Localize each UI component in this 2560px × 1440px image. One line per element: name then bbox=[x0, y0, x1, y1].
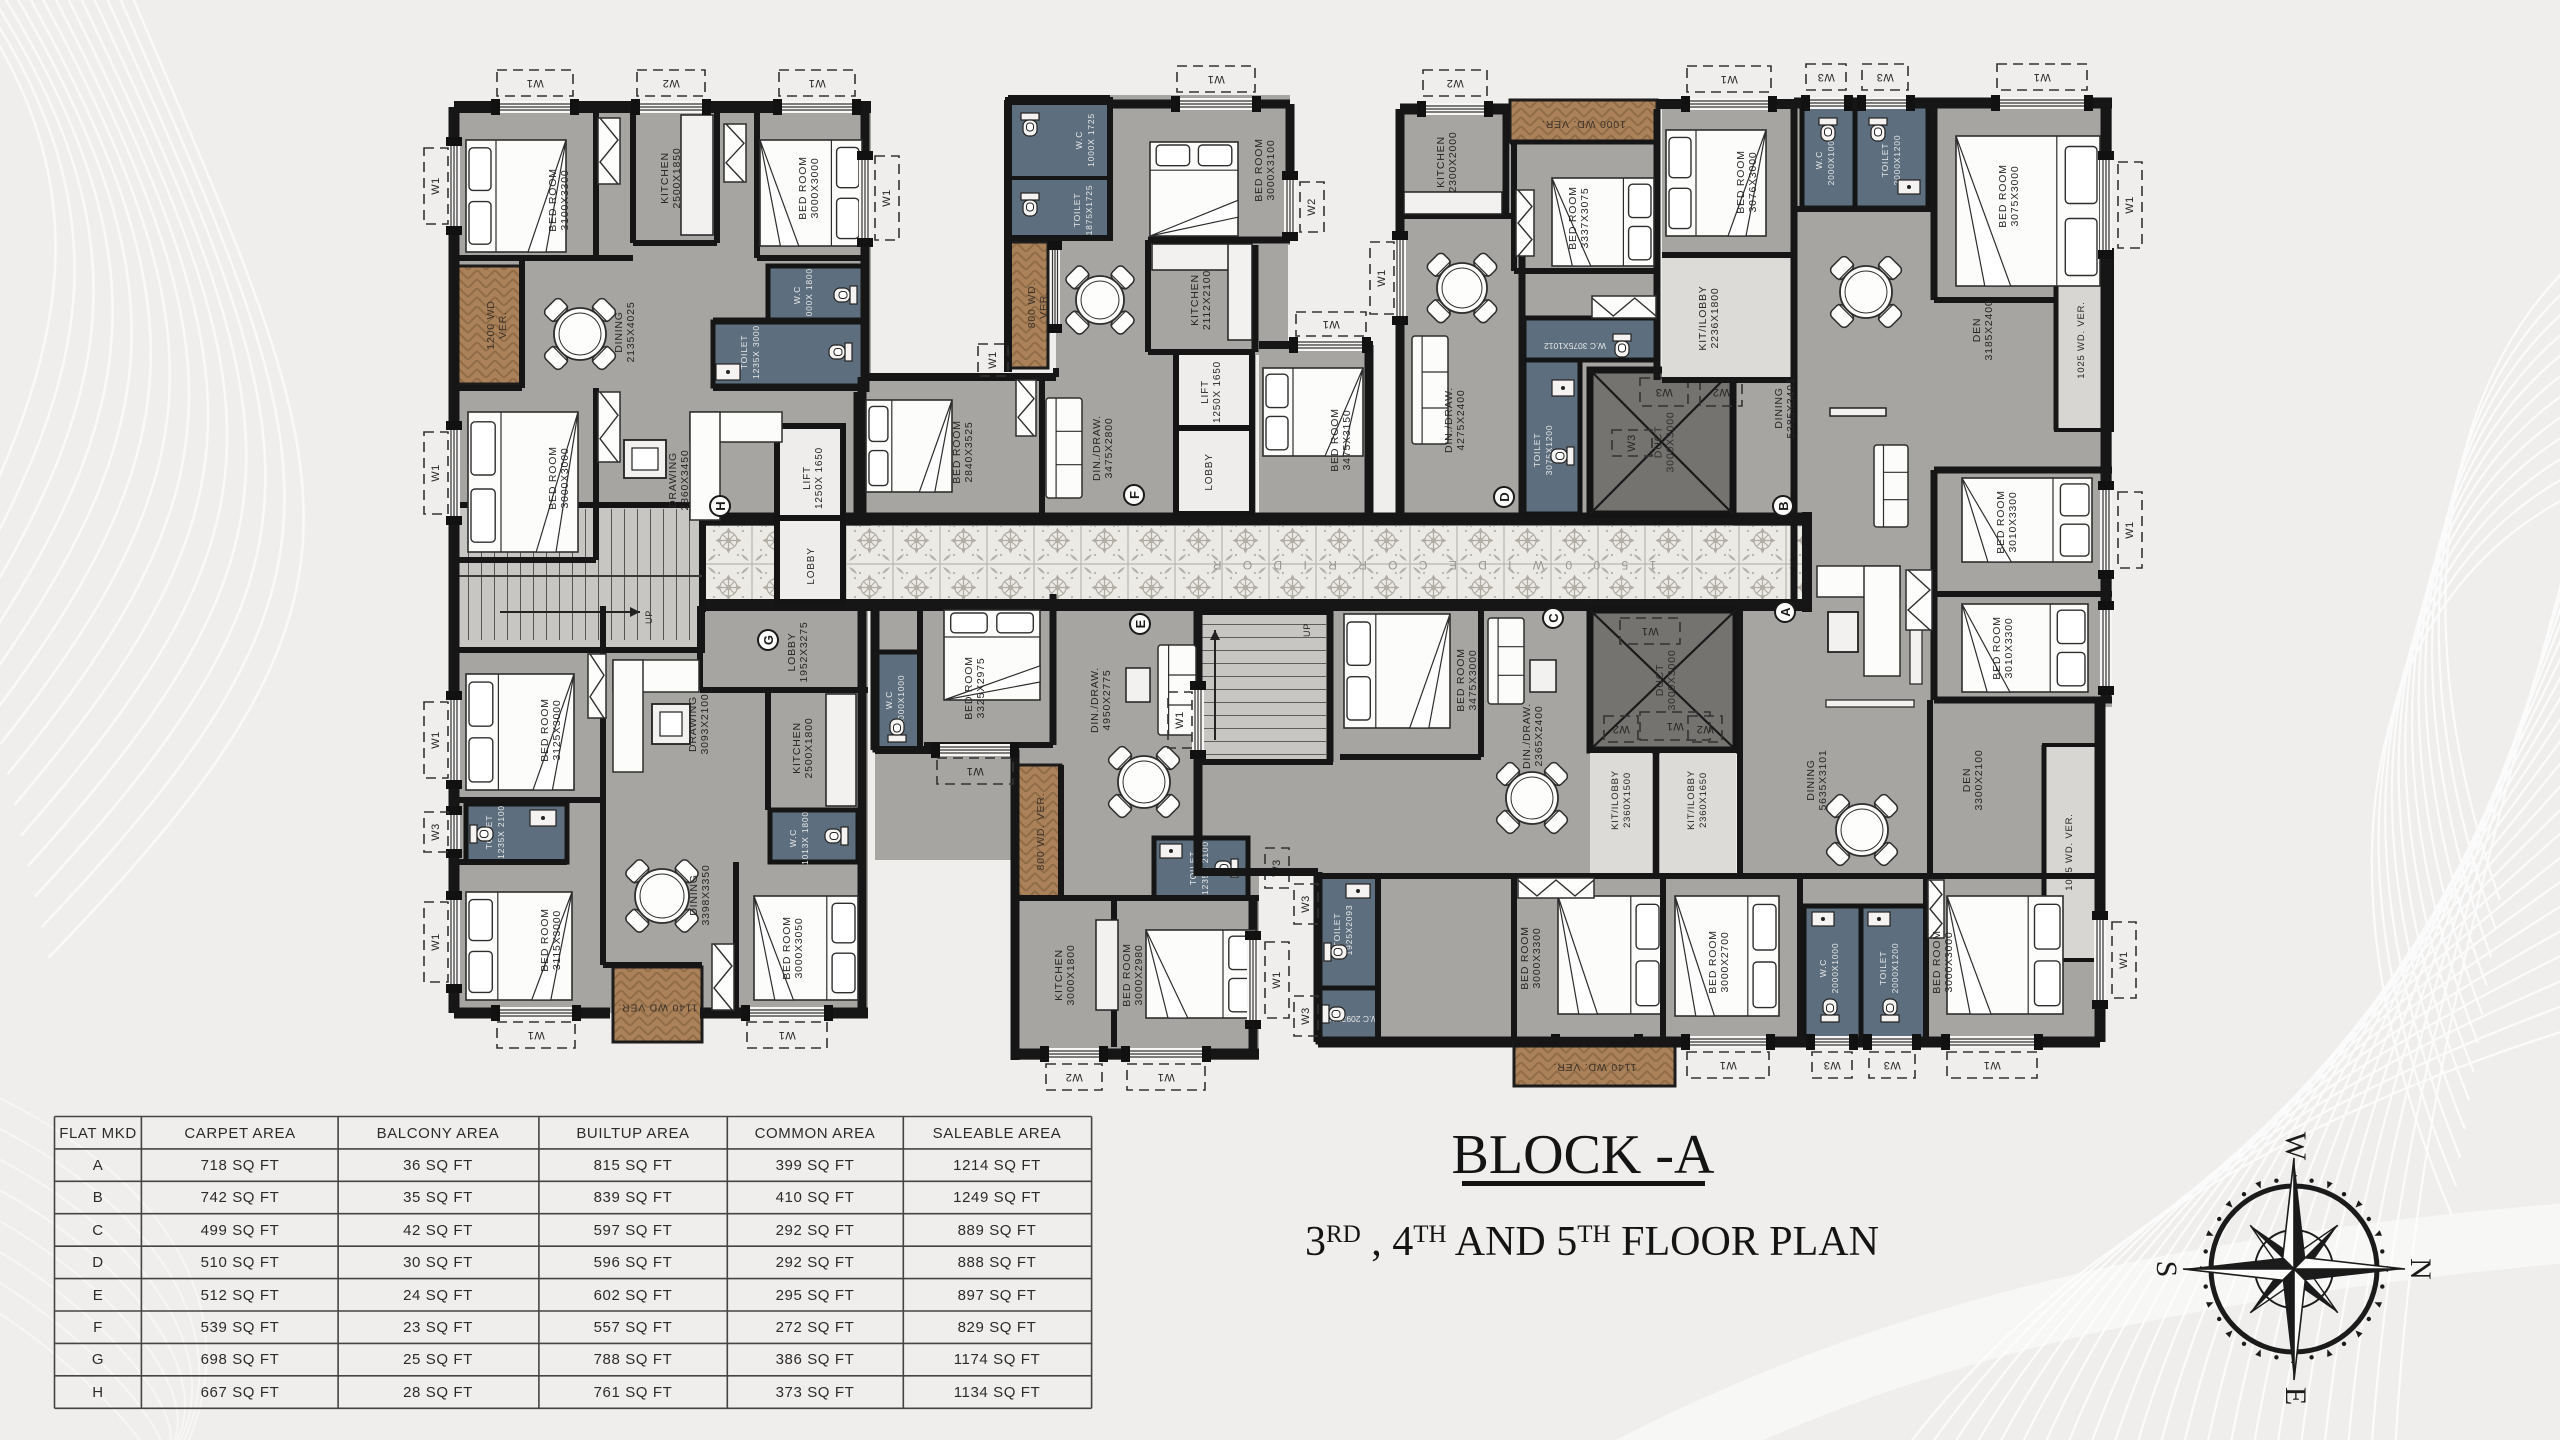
svg-text:W3: W3 bbox=[1655, 386, 1673, 398]
svg-text:W1: W1 bbox=[1174, 711, 1186, 729]
svg-text:SALEABLE AREA: SALEABLE AREA bbox=[933, 1125, 1062, 1142]
svg-text:DINING: DINING bbox=[613, 311, 625, 353]
svg-text:3000X3000: 3000X3000 bbox=[809, 158, 821, 219]
svg-text:3300X2100: 3300X2100 bbox=[1973, 750, 1985, 811]
svg-text:BED ROOM: BED ROOM bbox=[547, 168, 559, 232]
svg-text:BED ROOM: BED ROOM bbox=[797, 156, 809, 220]
svg-text:3010X3300: 3010X3300 bbox=[2003, 618, 2015, 679]
svg-text:W1: W1 bbox=[526, 77, 544, 89]
svg-text:373 SQ FT: 373 SQ FT bbox=[776, 1384, 855, 1401]
svg-text:C: C bbox=[1546, 613, 1561, 623]
svg-text:1000X 1725: 1000X 1725 bbox=[1086, 113, 1096, 167]
svg-text:BED ROOM: BED ROOM bbox=[1997, 164, 2009, 228]
svg-text:W1: W1 bbox=[1322, 318, 1340, 330]
svg-text:2365X2400: 2365X2400 bbox=[1533, 706, 1545, 767]
svg-text:539 SQ FT: 539 SQ FT bbox=[201, 1319, 280, 1336]
svg-text:3115X3000: 3115X3000 bbox=[551, 910, 563, 970]
svg-text:KITCHEN: KITCHEN bbox=[1435, 136, 1447, 188]
svg-text:S: S bbox=[2150, 1261, 2183, 1278]
svg-text:386 SQ FT: 386 SQ FT bbox=[776, 1351, 855, 1368]
svg-text:DUCT: DUCT bbox=[1654, 664, 1666, 696]
svg-text:3000X3000: 3000X3000 bbox=[1943, 932, 1955, 993]
svg-text:1174 SQ FT: 1174 SQ FT bbox=[954, 1351, 1041, 1368]
svg-text:36 SQ FT: 36 SQ FT bbox=[403, 1157, 473, 1174]
svg-text:3000X3000: 3000X3000 bbox=[559, 448, 571, 509]
svg-text:W2: W2 bbox=[1696, 723, 1714, 735]
svg-text:TOILET: TOILET bbox=[1878, 951, 1888, 985]
svg-text:W.C: W.C bbox=[1814, 151, 1824, 169]
svg-text:3075X3000: 3075X3000 bbox=[2009, 166, 2021, 227]
svg-text:BED ROOM: BED ROOM bbox=[1995, 490, 2007, 554]
svg-text:2360X1650: 2360X1650 bbox=[1698, 772, 1709, 828]
svg-text:W3: W3 bbox=[1300, 1007, 1312, 1025]
svg-text:BED ROOM: BED ROOM bbox=[1253, 138, 1265, 202]
svg-text:W2: W2 bbox=[1712, 386, 1730, 398]
svg-text:BED ROOM: BED ROOM bbox=[1455, 648, 1467, 712]
svg-text:3000X3300: 3000X3300 bbox=[1531, 928, 1543, 989]
svg-text:DRAWING: DRAWING bbox=[667, 452, 679, 508]
svg-text:E: E bbox=[1133, 619, 1148, 628]
svg-text:W1: W1 bbox=[881, 189, 893, 207]
svg-text:W1: W1 bbox=[430, 731, 442, 749]
svg-text:B: B bbox=[93, 1189, 104, 1206]
svg-text:718 SQ FT: 718 SQ FT bbox=[201, 1157, 280, 1174]
svg-text:W3: W3 bbox=[1300, 895, 1312, 913]
svg-text:KITCHEN: KITCHEN bbox=[791, 722, 803, 774]
svg-text:W1: W1 bbox=[430, 464, 442, 482]
svg-text:W1: W1 bbox=[1157, 1071, 1175, 1083]
svg-text:3475X2800: 3475X2800 bbox=[1103, 418, 1115, 479]
svg-text:TOILET: TOILET bbox=[1072, 193, 1082, 227]
svg-text:KITCHEN: KITCHEN bbox=[1189, 274, 1201, 326]
svg-text:BED ROOM: BED ROOM bbox=[1567, 186, 1579, 250]
svg-text:W2: W2 bbox=[1612, 723, 1630, 735]
svg-text:800 WD. VER.: 800 WD. VER. bbox=[1035, 793, 1047, 871]
svg-text:N: N bbox=[2404, 1258, 2437, 1280]
svg-text:DINING: DINING bbox=[1805, 759, 1817, 801]
svg-text:399 SQ FT: 399 SQ FT bbox=[776, 1157, 855, 1174]
svg-text:BED ROOM: BED ROOM bbox=[781, 916, 793, 980]
svg-text:TOILET: TOILET bbox=[1880, 143, 1890, 177]
svg-text:A: A bbox=[93, 1157, 104, 1174]
svg-text:KITCHEN: KITCHEN bbox=[659, 152, 671, 204]
svg-text:667 SQ FT: 667 SQ FT bbox=[201, 1384, 280, 1401]
svg-text:2000X1200: 2000X1200 bbox=[1892, 135, 1902, 186]
svg-text:W1: W1 bbox=[1207, 73, 1225, 85]
svg-text:596 SQ FT: 596 SQ FT bbox=[594, 1254, 673, 1271]
svg-text:W1: W1 bbox=[1666, 720, 1684, 732]
svg-text:292 SQ FT: 292 SQ FT bbox=[776, 1254, 855, 1271]
svg-text:597 SQ FT: 597 SQ FT bbox=[594, 1222, 673, 1239]
svg-text:BED ROOM: BED ROOM bbox=[539, 908, 551, 972]
svg-text:272 SQ FT: 272 SQ FT bbox=[776, 1319, 855, 1336]
svg-text:2500X1850: 2500X1850 bbox=[671, 148, 683, 209]
svg-text:W1: W1 bbox=[966, 765, 984, 777]
svg-text:3398X3350: 3398X3350 bbox=[700, 865, 712, 926]
svg-text:2000X1000: 2000X1000 bbox=[1826, 135, 1836, 186]
svg-text:DIN./DRAW.: DIN./DRAW. bbox=[1089, 667, 1101, 733]
svg-text:2236X1800: 2236X1800 bbox=[1709, 288, 1721, 349]
svg-text:24 SQ FT: 24 SQ FT bbox=[403, 1287, 473, 1304]
svg-text:2860X3450: 2860X3450 bbox=[679, 450, 691, 511]
svg-text:BED ROOM: BED ROOM bbox=[1931, 930, 1943, 994]
svg-text:W3: W3 bbox=[430, 823, 442, 841]
svg-text:761 SQ FT: 761 SQ FT bbox=[594, 1384, 673, 1401]
svg-text:2840X3525: 2840X3525 bbox=[963, 422, 975, 483]
svg-text:W3: W3 bbox=[1817, 71, 1835, 83]
svg-text:TOILET: TOILET bbox=[1332, 913, 1342, 947]
svg-text:3475X3000: 3475X3000 bbox=[1467, 650, 1479, 711]
svg-text:3076X3000: 3076X3000 bbox=[1747, 152, 1759, 213]
svg-text:2500X1800: 2500X1800 bbox=[803, 718, 815, 779]
svg-text:W2: W2 bbox=[1306, 198, 1318, 216]
svg-text:BALCONY AREA: BALCONY AREA bbox=[377, 1125, 500, 1142]
svg-text:KITCHEN: KITCHEN bbox=[1053, 949, 1065, 1001]
svg-text:W.C 3075X1012: W.C 3075X1012 bbox=[1544, 341, 1606, 351]
svg-text:2000X1000: 2000X1000 bbox=[1830, 943, 1840, 994]
svg-text:W1: W1 bbox=[778, 1029, 796, 1041]
svg-text:295 SQ FT: 295 SQ FT bbox=[776, 1287, 855, 1304]
svg-text:BED ROOM: BED ROOM bbox=[951, 420, 963, 484]
svg-text:KIT/ILOBBY: KIT/ILOBBY bbox=[1697, 285, 1709, 350]
svg-text:LIFT: LIFT bbox=[1200, 380, 1211, 404]
svg-text:BED ROOM: BED ROOM bbox=[963, 656, 975, 720]
svg-text:LIFT: LIFT bbox=[802, 466, 813, 490]
svg-text:1025 WD. VER.: 1025 WD. VER. bbox=[2076, 301, 2087, 378]
svg-text:2300X2000: 2300X2000 bbox=[1447, 132, 1459, 193]
svg-text:1200 WD: 1200 WD bbox=[485, 300, 497, 349]
svg-text:B: B bbox=[1776, 501, 1791, 510]
svg-text:BED ROOM: BED ROOM bbox=[1707, 930, 1719, 994]
svg-text:W3: W3 bbox=[1883, 1059, 1901, 1071]
svg-text:UP: UP bbox=[1302, 623, 1312, 637]
svg-text:W1: W1 bbox=[987, 351, 999, 369]
svg-text:W1: W1 bbox=[2124, 521, 2136, 539]
svg-text:UP: UP bbox=[644, 610, 654, 624]
svg-text:DINING: DINING bbox=[688, 874, 700, 916]
svg-text:510 SQ FT: 510 SQ FT bbox=[201, 1254, 280, 1271]
svg-text:698 SQ FT: 698 SQ FT bbox=[201, 1351, 280, 1368]
svg-text:G: G bbox=[761, 635, 776, 645]
svg-text:35 SQ FT: 35 SQ FT bbox=[403, 1189, 473, 1206]
svg-text:LOBBY: LOBBY bbox=[786, 632, 798, 671]
svg-text:W1: W1 bbox=[2118, 951, 2130, 969]
svg-text:W1: W1 bbox=[1641, 625, 1659, 637]
svg-text:1214 SQ FT: 1214 SQ FT bbox=[953, 1157, 1041, 1174]
svg-text:KIT/ILOBBY: KIT/ILOBBY bbox=[1610, 770, 1621, 830]
svg-text:DRAWING: DRAWING bbox=[687, 696, 699, 752]
svg-text:F: F bbox=[1127, 491, 1142, 499]
svg-text:1235X 3000: 1235X 3000 bbox=[751, 325, 761, 379]
svg-text:3093X2100: 3093X2100 bbox=[699, 694, 711, 755]
svg-text:888 SQ FT: 888 SQ FT bbox=[958, 1254, 1037, 1271]
svg-text:1013X 1800: 1013X 1800 bbox=[800, 811, 810, 865]
svg-text:1 5 0 0 W I D E C O R R I: 1 5 0 0 W I D E C O R R I D O R bbox=[1204, 558, 1656, 572]
svg-text:1134 SQ FT: 1134 SQ FT bbox=[954, 1384, 1041, 1401]
svg-text:839 SQ FT: 839 SQ FT bbox=[594, 1189, 673, 1206]
svg-text:DUCT: DUCT bbox=[1653, 426, 1665, 458]
svg-text:897 SQ FT: 897 SQ FT bbox=[958, 1287, 1037, 1304]
svg-text:A: A bbox=[1778, 607, 1793, 617]
svg-text:TOILET: TOILET bbox=[1532, 433, 1542, 467]
svg-text:W1: W1 bbox=[2033, 71, 2051, 83]
svg-text:BED ROOM: BED ROOM bbox=[1519, 926, 1531, 990]
svg-text:D: D bbox=[1497, 492, 1512, 501]
svg-text:BUILTUP AREA: BUILTUP AREA bbox=[576, 1125, 689, 1142]
svg-text:W1: W1 bbox=[430, 933, 442, 951]
svg-text:BED ROOM: BED ROOM bbox=[547, 446, 559, 510]
svg-text:BED ROOM: BED ROOM bbox=[1329, 408, 1341, 472]
svg-text:W1: W1 bbox=[1720, 73, 1738, 85]
svg-text:VER.: VER. bbox=[1038, 291, 1050, 319]
svg-text:815 SQ FT: 815 SQ FT bbox=[594, 1157, 673, 1174]
svg-text:1235X 2100: 1235X 2100 bbox=[496, 805, 506, 859]
svg-text:742 SQ FT: 742 SQ FT bbox=[201, 1189, 280, 1206]
svg-text:2360X1500: 2360X1500 bbox=[1622, 772, 1633, 828]
svg-text:G: G bbox=[92, 1351, 104, 1368]
svg-text:5385X3401: 5385X3401 bbox=[1785, 378, 1797, 439]
svg-text:3475X3150: 3475X3150 bbox=[1341, 410, 1353, 471]
svg-text:DIN./DRAW.: DIN./DRAW. bbox=[1521, 703, 1533, 769]
svg-text:LOBBY: LOBBY bbox=[1204, 453, 1215, 490]
svg-text:3000X3050: 3000X3050 bbox=[793, 918, 805, 979]
svg-text:BED ROOM: BED ROOM bbox=[1121, 943, 1133, 1007]
svg-text:1140 WD. VER.: 1140 WD. VER. bbox=[1553, 1061, 1637, 1073]
svg-text:BED ROOM: BED ROOM bbox=[539, 698, 551, 762]
svg-text:3000X3000: 3000X3000 bbox=[1666, 650, 1678, 711]
svg-text:1249 SQ FT: 1249 SQ FT bbox=[953, 1189, 1041, 1206]
svg-text:E: E bbox=[93, 1287, 104, 1304]
svg-text:3337X3075: 3337X3075 bbox=[1579, 188, 1591, 249]
svg-text:BLOCK -A: BLOCK -A bbox=[1452, 1124, 1715, 1186]
svg-text:W2: W2 bbox=[662, 77, 680, 89]
svg-text:C: C bbox=[92, 1222, 103, 1239]
svg-text:FLAT MKD: FLAT MKD bbox=[59, 1125, 137, 1142]
svg-text:W3: W3 bbox=[1626, 434, 1638, 452]
svg-text:3125X3000: 3125X3000 bbox=[551, 700, 563, 761]
svg-text:W1: W1 bbox=[430, 177, 442, 195]
svg-text:1025 WD. VER.: 1025 WD. VER. bbox=[2064, 813, 2075, 890]
svg-text:1952X3275: 1952X3275 bbox=[798, 622, 810, 683]
svg-text:BED ROOM: BED ROOM bbox=[1735, 150, 1747, 214]
svg-text:42 SQ FT: 42 SQ FT bbox=[403, 1222, 473, 1239]
svg-text:30 SQ FT: 30 SQ FT bbox=[403, 1254, 473, 1271]
svg-text:3000X1800: 3000X1800 bbox=[1065, 945, 1077, 1006]
svg-text:4950X2775: 4950X2775 bbox=[1101, 670, 1113, 731]
svg-text:3325X2975: 3325X2975 bbox=[975, 658, 987, 719]
svg-text:W.C: W.C bbox=[884, 691, 894, 709]
svg-text:VER.: VER. bbox=[497, 311, 509, 339]
svg-text:W1: W1 bbox=[1376, 269, 1388, 287]
svg-text:W3: W3 bbox=[1876, 71, 1894, 83]
svg-text:W.C: W.C bbox=[1074, 131, 1084, 149]
svg-text:292 SQ FT: 292 SQ FT bbox=[776, 1222, 855, 1239]
svg-text:CARPET AREA: CARPET AREA bbox=[184, 1125, 295, 1142]
svg-text:W.C: W.C bbox=[792, 286, 802, 304]
svg-text:2112X2100: 2112X2100 bbox=[1201, 270, 1213, 330]
svg-text:3000X3000: 3000X3000 bbox=[1665, 412, 1677, 473]
svg-text:DINING: DINING bbox=[1773, 387, 1785, 429]
svg-text:COMMON AREA: COMMON AREA bbox=[755, 1125, 876, 1142]
svg-text:1000X 1800: 1000X 1800 bbox=[804, 268, 814, 322]
svg-text:E: E bbox=[2279, 1387, 2312, 1405]
svg-text:H: H bbox=[713, 501, 728, 510]
svg-text:28 SQ FT: 28 SQ FT bbox=[403, 1384, 473, 1401]
svg-text:889 SQ FT: 889 SQ FT bbox=[958, 1222, 1037, 1239]
svg-text:410 SQ FT: 410 SQ FT bbox=[776, 1189, 855, 1206]
svg-text:1000 WD. VER.: 1000 WD. VER. bbox=[1541, 118, 1626, 130]
svg-text:788 SQ FT: 788 SQ FT bbox=[594, 1351, 673, 1368]
svg-text:DIN./DRAW.: DIN./DRAW. bbox=[1091, 415, 1103, 481]
svg-text:W.C: W.C bbox=[788, 829, 798, 847]
svg-text:DEN: DEN bbox=[1961, 768, 1973, 793]
svg-text:W2: W2 bbox=[1065, 1071, 1083, 1083]
svg-text:602 SQ FT: 602 SQ FT bbox=[594, 1287, 673, 1304]
svg-text:557 SQ FT: 557 SQ FT bbox=[594, 1319, 673, 1336]
svg-text:BED ROOM: BED ROOM bbox=[1991, 616, 2003, 680]
svg-text:499 SQ FT: 499 SQ FT bbox=[201, 1222, 280, 1239]
svg-text:3000X2980: 3000X2980 bbox=[1133, 945, 1145, 1006]
svg-text:DIN./DRAW.: DIN./DRAW. bbox=[1443, 387, 1455, 453]
svg-text:W: W bbox=[2279, 1132, 2312, 1161]
svg-text:W1: W1 bbox=[2124, 196, 2136, 214]
svg-text:DEN: DEN bbox=[1971, 318, 1983, 343]
svg-text:1140 WD VER.: 1140 WD VER. bbox=[617, 1002, 697, 1014]
svg-text:4275X2400: 4275X2400 bbox=[1455, 390, 1467, 451]
svg-text:2135X4025: 2135X4025 bbox=[625, 302, 637, 363]
svg-text:3010X3300: 3010X3300 bbox=[2007, 492, 2019, 553]
svg-text:3000X2700: 3000X2700 bbox=[1719, 932, 1731, 993]
svg-text:W1: W1 bbox=[1983, 1059, 2001, 1071]
svg-text:5635X3101: 5635X3101 bbox=[1817, 750, 1829, 811]
svg-text:W3: W3 bbox=[1823, 1059, 1841, 1071]
svg-text:2000X1000: 2000X1000 bbox=[896, 675, 906, 726]
svg-text:H: H bbox=[92, 1384, 103, 1401]
svg-text:W1: W1 bbox=[527, 1029, 545, 1041]
svg-text:25 SQ FT: 25 SQ FT bbox=[403, 1351, 473, 1368]
svg-text:512 SQ FT: 512 SQ FT bbox=[201, 1287, 280, 1304]
svg-text:D: D bbox=[92, 1254, 103, 1271]
svg-text:W1: W1 bbox=[1271, 971, 1283, 989]
svg-text:KIT/ILOBBY: KIT/ILOBBY bbox=[1686, 770, 1697, 830]
svg-text:829 SQ FT: 829 SQ FT bbox=[958, 1319, 1037, 1336]
svg-text:W1: W1 bbox=[808, 77, 826, 89]
svg-text:LOBBY: LOBBY bbox=[806, 547, 817, 584]
svg-text:3000X3100: 3000X3100 bbox=[1265, 140, 1277, 201]
svg-text:W2: W2 bbox=[1446, 77, 1464, 89]
svg-text:800 WD.: 800 WD. bbox=[1026, 282, 1038, 328]
svg-text:1250X 1650: 1250X 1650 bbox=[1212, 361, 1223, 423]
svg-text:1875X1725: 1875X1725 bbox=[1084, 185, 1094, 236]
svg-text:3185X2400: 3185X2400 bbox=[1983, 300, 1995, 361]
svg-text:F: F bbox=[93, 1319, 103, 1336]
svg-text:W1: W1 bbox=[1719, 1059, 1737, 1071]
svg-text:3075X1200: 3075X1200 bbox=[1544, 425, 1554, 476]
svg-text:23 SQ FT: 23 SQ FT bbox=[403, 1319, 473, 1336]
svg-text:W.C: W.C bbox=[1818, 959, 1828, 977]
svg-text:3100X3300: 3100X3300 bbox=[559, 170, 571, 231]
svg-text:1250X 1650: 1250X 1650 bbox=[814, 447, 825, 509]
svg-text:2000X1200: 2000X1200 bbox=[1890, 943, 1900, 994]
